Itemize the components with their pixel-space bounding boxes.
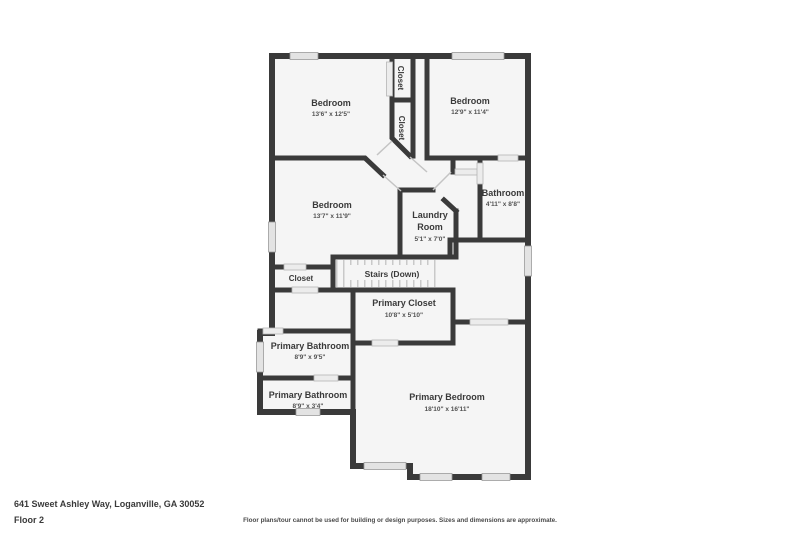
room-label-laundry-line2: Room xyxy=(417,222,443,232)
room-dims-primary-bathroom-lower: 8'9" x 3'4" xyxy=(293,403,324,410)
room-label-bathroom: Bathroom xyxy=(482,188,525,198)
room-dims-primary-bathroom-upper: 8'9" x 9'5" xyxy=(295,354,326,361)
room-label-bedroom-middle: Bedroom xyxy=(312,200,352,210)
room-label-primary-bathroom-upper: Primary Bathroom xyxy=(271,341,350,351)
room-label-bedroom-top-left: Bedroom xyxy=(311,98,351,108)
room-dims-bathroom: 4'11" x 8'8" xyxy=(486,201,520,208)
room-label-stairs: Stairs (Down) xyxy=(365,269,420,279)
room-label-primary-bathroom-lower: Primary Bathroom xyxy=(269,390,348,400)
room-dims-primary-bedroom: 18'10" x 16'11" xyxy=(424,406,469,413)
floor-plan: Bedroom 13'6" x 12'5" Bedroom 12'9" x 11… xyxy=(0,0,800,533)
room-label-closet-top: Closet xyxy=(396,66,405,91)
room-dims-bedroom-top-left: 13'6" x 12'5" xyxy=(312,111,350,118)
room-label-closet-mid: Closet xyxy=(397,116,406,141)
room-label-bedroom-top-right: Bedroom xyxy=(450,96,490,106)
room-label-primary-closet: Primary Closet xyxy=(372,298,436,308)
floor-label: Floor 2 xyxy=(14,515,44,525)
property-address: 641 Sweet Ashley Way, Loganville, GA 300… xyxy=(14,499,204,509)
room-label-primary-bedroom: Primary Bedroom xyxy=(409,392,485,402)
room-dims-bedroom-middle: 13'7" x 11'9" xyxy=(313,213,351,220)
room-label-closet-left: Closet xyxy=(289,274,314,283)
room-dims-primary-closet: 10'8" x 5'10" xyxy=(385,312,423,319)
floor-plan-page: Bedroom 13'6" x 12'5" Bedroom 12'9" x 11… xyxy=(0,0,800,533)
room-dims-laundry: 5'1" x 7'0" xyxy=(415,236,446,243)
room-dims-bedroom-top-right: 12'9" x 11'4" xyxy=(451,109,489,116)
disclaimer-text: Floor plans/tour cannot be used for buil… xyxy=(200,517,600,524)
room-label-laundry-line1: Laundry xyxy=(412,210,448,220)
